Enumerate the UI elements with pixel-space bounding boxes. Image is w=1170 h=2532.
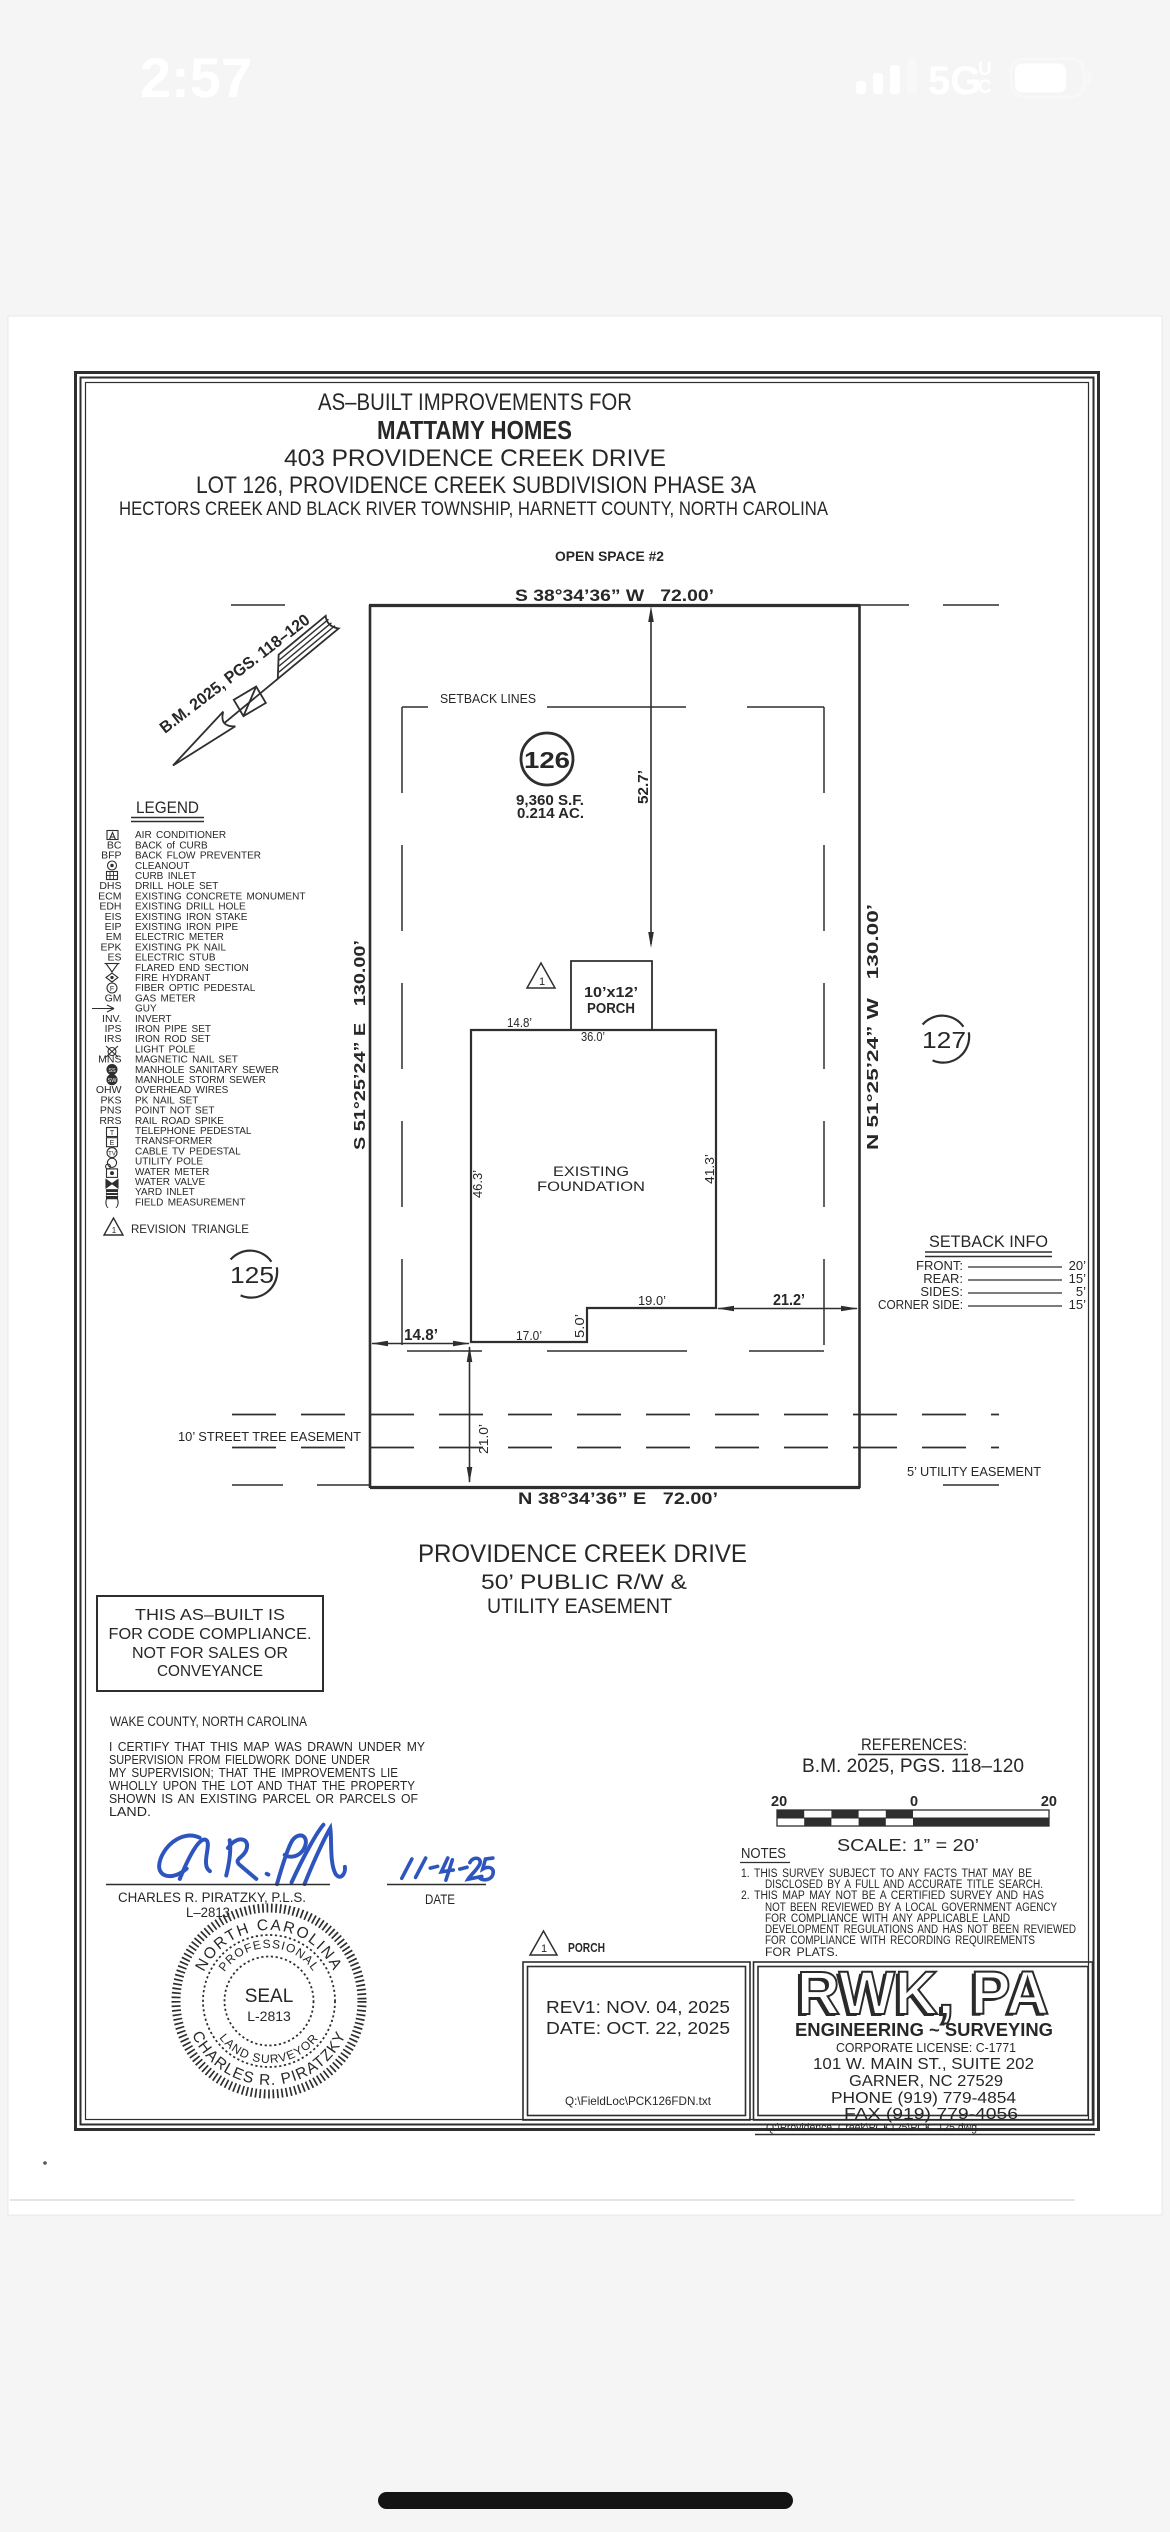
svg-text:EXISTING: EXISTING (553, 1164, 629, 1179)
svg-text:5.0’: 5.0’ (573, 1314, 587, 1338)
svg-text:10’ STREET TREE EASEMENT: 10’ STREET TREE EASEMENT (178, 1429, 361, 1444)
svg-text:SCALE: 1” = 20’: SCALE: 1” = 20’ (837, 1835, 979, 1855)
svg-text:20: 20 (1041, 1794, 1057, 1810)
svg-text:E: E (110, 1140, 115, 1147)
svg-text:14.8’: 14.8’ (507, 1016, 532, 1030)
svg-text:SW: SW (108, 1078, 118, 1084)
svg-text:WAKE COUNTY, NORTH CAROLINA: WAKE COUNTY, NORTH CAROLINA (110, 1714, 307, 1729)
svg-text:DATE: DATE (425, 1892, 455, 1907)
svg-text:REVISION TRIANGLE: REVISION TRIANGLE (131, 1224, 249, 1236)
svg-text:1: 1 (541, 1943, 547, 1955)
svg-text:REFERENCES:: REFERENCES: (861, 1736, 967, 1754)
svg-text:ENGINEERING ~ SURVEYING: ENGINEERING ~ SURVEYING (795, 2019, 1053, 2040)
svg-text:Q:\Providence Creek\PCK125\PC: Q:\Providence Creek\PCK125\PCK 125.dwg (766, 2122, 977, 2134)
svg-text:SS: SS (108, 1068, 116, 1074)
svg-text:CHARLES R. PIRATZKY, P.L.S.: CHARLES R. PIRATZKY, P.L.S. (118, 1890, 306, 1905)
svg-text:101 W. MAIN ST., SUITE 202: 101 W. MAIN ST., SUITE 202 (813, 2056, 1034, 2073)
svg-text:1: 1 (539, 976, 545, 988)
svg-text:AS–BUILT IMPROVEMENTS FOR: AS–BUILT IMPROVEMENTS FOR (318, 389, 632, 416)
svg-text:LAND.: LAND. (109, 1805, 151, 1819)
svg-text:52.7’: 52.7’ (635, 770, 652, 804)
svg-text:2:57: 2:57 (140, 46, 252, 109)
svg-text:N 38°34’36” E 72.00’: N 38°34’36” E 72.00’ (518, 1489, 718, 1508)
svg-text:NOTES: NOTES (741, 1846, 786, 1862)
svg-text:MY SUPERVISION; THAT THE IMPRO: MY SUPERVISION; THAT THE IMPROVEMENTS LI… (109, 1766, 398, 1780)
svg-text:TV: TV (108, 1151, 116, 1157)
svg-text:41.3’: 41.3’ (703, 1154, 717, 1184)
svg-text:THIS AS–BUILT IS: THIS AS–BUILT IS (135, 1607, 285, 1624)
svg-text:UTILITY EASEMENT: UTILITY EASEMENT (487, 1595, 672, 1618)
svg-text:SETBACK INFO: SETBACK INFO (929, 1232, 1048, 1251)
svg-text:OPEN SPACE #2: OPEN SPACE #2 (555, 548, 664, 564)
svg-text:S 51°25’24” E 130.00’: S 51°25’24” E 130.00’ (352, 940, 369, 1150)
svg-text:T: T (110, 1130, 115, 1137)
svg-text:LOT 126, PROVIDENCE CREEK SUBD: LOT 126, PROVIDENCE CREEK SUBDIVISION PH… (196, 472, 756, 499)
svg-text:15’: 15’ (1069, 1297, 1086, 1312)
svg-text:LEGEND: LEGEND (136, 798, 199, 817)
svg-text:17.0’: 17.0’ (516, 1329, 542, 1343)
svg-text:SHOWN IS AN EXISTING PARCEL OR: SHOWN IS AN EXISTING PARCEL OR PARCELS O… (109, 1792, 418, 1806)
svg-text:5’ UTILITY EASEMENT: 5’ UTILITY EASEMENT (907, 1464, 1041, 1479)
svg-text:0.214 AC.: 0.214 AC. (517, 806, 584, 822)
svg-text:Q:\FieldLoc\PCK126FDN.txt: Q:\FieldLoc\PCK126FDN.txt (565, 2094, 712, 2108)
svg-text:FOR CODE COMPLIANCE.: FOR CODE COMPLIANCE. (109, 1626, 312, 1643)
svg-text:L–2813: L–2813 (186, 1905, 230, 1920)
svg-text:WHOLLY UPON THE LOT AND THAT T: WHOLLY UPON THE LOT AND THAT THE PROPERT… (109, 1779, 416, 1793)
svg-text:5G: 5G (928, 59, 981, 103)
svg-text:I CERTIFY THAT THIS MAP WAS DR: I CERTIFY THAT THIS MAP WAS DRAWN UNDER … (109, 1740, 426, 1754)
svg-text:14.8’: 14.8’ (404, 1327, 438, 1344)
svg-text:20: 20 (771, 1794, 787, 1810)
svg-text:HECTORS CREEK AND BLACK RIVER: HECTORS CREEK AND BLACK RIVER TOWNSHIP, … (119, 499, 828, 520)
svg-text:CORNER SIDE:: CORNER SIDE: (878, 1297, 963, 1312)
svg-text:19.0’: 19.0’ (638, 1294, 666, 1308)
svg-text:FAX (919) 779-4056: FAX (919) 779-4056 (844, 2106, 1018, 2123)
svg-text:IRS: IRS (104, 1033, 122, 1045)
svg-text:1: 1 (112, 1226, 117, 1235)
svg-text:FIELD MEASUREMENT: FIELD MEASUREMENT (135, 1197, 246, 1208)
svg-text:L-2813: L-2813 (247, 2008, 291, 2024)
svg-text:21.2’: 21.2’ (773, 1292, 805, 1309)
svg-text:PORCH: PORCH (587, 1001, 635, 1017)
svg-text:GARNER, NC 27529: GARNER, NC 27529 (849, 2073, 1003, 2090)
svg-text:SUPERVISION FROM FIELDWORK DON: SUPERVISION FROM FIELDWORK DONE UNDER (109, 1753, 370, 1767)
svg-text:CONVEYANCE: CONVEYANCE (157, 1663, 263, 1680)
svg-text:2. THIS MAP MAY NOT BE A CERTI: 2. THIS MAP MAY NOT BE A CERTIFIED SURVE… (741, 1890, 1044, 1902)
svg-text:N 51°25’24” W 130.00’: N 51°25’24” W 130.00’ (865, 904, 882, 1150)
svg-text:FOR COMPLIANCE WITH RECORDING: FOR COMPLIANCE WITH RECORDING REQUIREMEN… (765, 1935, 1035, 1947)
svg-text:10’x12’: 10’x12’ (584, 985, 638, 1001)
svg-text:125: 125 (230, 1262, 274, 1288)
svg-text:F: F (110, 986, 114, 993)
svg-text:PORCH: PORCH (568, 1941, 605, 1955)
svg-text:SETBACK LINES: SETBACK LINES (440, 691, 536, 706)
svg-text:BFP: BFP (101, 850, 121, 862)
svg-text:DATE: OCT. 22, 2025: DATE: OCT. 22, 2025 (546, 2018, 730, 2038)
svg-text:B.M. 2025, PGS. 118–120: B.M. 2025, PGS. 118–120 (802, 1756, 1024, 1777)
svg-text:RRS: RRS (99, 1115, 121, 1127)
svg-text:FOUNDATION: FOUNDATION (537, 1179, 645, 1194)
svg-text:SEAL: SEAL (245, 1986, 294, 2007)
svg-text:50’ PUBLIC R/W &: 50’ PUBLIC R/W & (481, 1571, 687, 1594)
svg-text:126: 126 (524, 747, 570, 773)
svg-text:36.0’: 36.0’ (581, 1030, 605, 1044)
svg-text:GM: GM (105, 992, 122, 1004)
svg-text:0: 0 (910, 1794, 918, 1810)
svg-text:MATTAMY HOMES: MATTAMY HOMES (377, 415, 572, 445)
svg-text:PHONE (919) 779-4854: PHONE (919) 779-4854 (831, 2090, 1016, 2107)
svg-text:ES: ES (107, 952, 121, 964)
svg-text:NOT FOR SALES OR: NOT FOR SALES OR (132, 1645, 288, 1662)
svg-text:C: C (978, 77, 992, 98)
svg-text:127: 127 (922, 1027, 966, 1053)
svg-text:( ): ( ) (105, 1194, 120, 1208)
svg-text:FOR PLATS.: FOR PLATS. (765, 1947, 838, 1959)
svg-text:REV1: NOV. 04, 2025: REV1: NOV. 04, 2025 (546, 1997, 730, 2017)
svg-text:403 PROVIDENCE CREEK DRIVE: 403 PROVIDENCE CREEK DRIVE (284, 445, 666, 472)
svg-text:S 38°34’36” W 72.00’: S 38°34’36” W 72.00’ (515, 586, 714, 605)
svg-text:RWK, PA: RWK, PA (797, 1959, 1049, 2027)
svg-text:46.3’: 46.3’ (471, 1170, 485, 1198)
svg-text:21.0’: 21.0’ (477, 1424, 491, 1454)
svg-text:CORPORATE LICENSE: C-1771: CORPORATE LICENSE: C-1771 (836, 2040, 1016, 2055)
svg-text:PROVIDENCE CREEK DRIVE: PROVIDENCE CREEK DRIVE (418, 1540, 747, 1568)
